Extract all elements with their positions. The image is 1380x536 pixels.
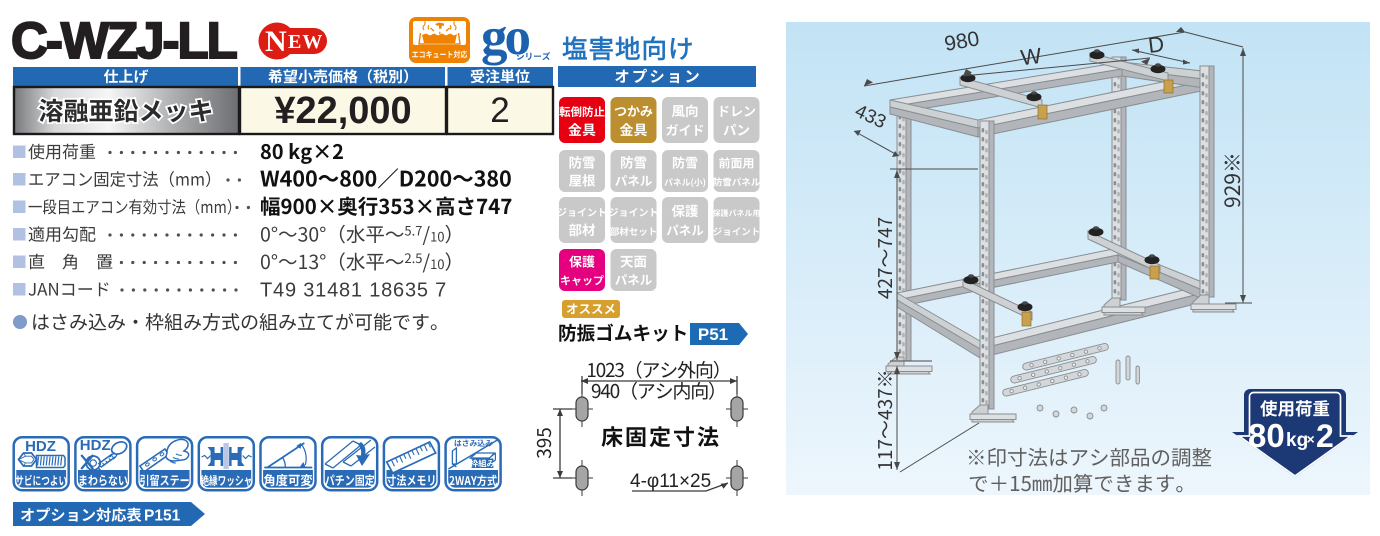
svg-text:2: 2 xyxy=(490,91,509,130)
svg-text:×: × xyxy=(1307,431,1315,447)
svg-text:D: D xyxy=(1147,31,1166,58)
svg-text:4-φ11×25: 4-φ11×25 xyxy=(630,471,711,492)
svg-text:P151: P151 xyxy=(144,508,181,525)
svg-text:HDZ: HDZ xyxy=(80,437,111,454)
svg-text:P51: P51 xyxy=(698,325,728,344)
svg-text:kg: kg xyxy=(1286,430,1308,451)
svg-text:EW: EW xyxy=(288,31,323,53)
svg-text:C-WZJ-LL: C-WZJ-LL xyxy=(11,12,237,69)
svg-text:2: 2 xyxy=(1316,418,1334,454)
svg-text:¥22,000: ¥22,000 xyxy=(274,90,411,132)
svg-text:80: 80 xyxy=(1248,417,1285,454)
svg-text:T49 31481 18635 7: T49 31481 18635 7 xyxy=(260,280,447,302)
svg-text:N: N xyxy=(265,25,287,58)
svg-text:W: W xyxy=(1019,43,1043,70)
